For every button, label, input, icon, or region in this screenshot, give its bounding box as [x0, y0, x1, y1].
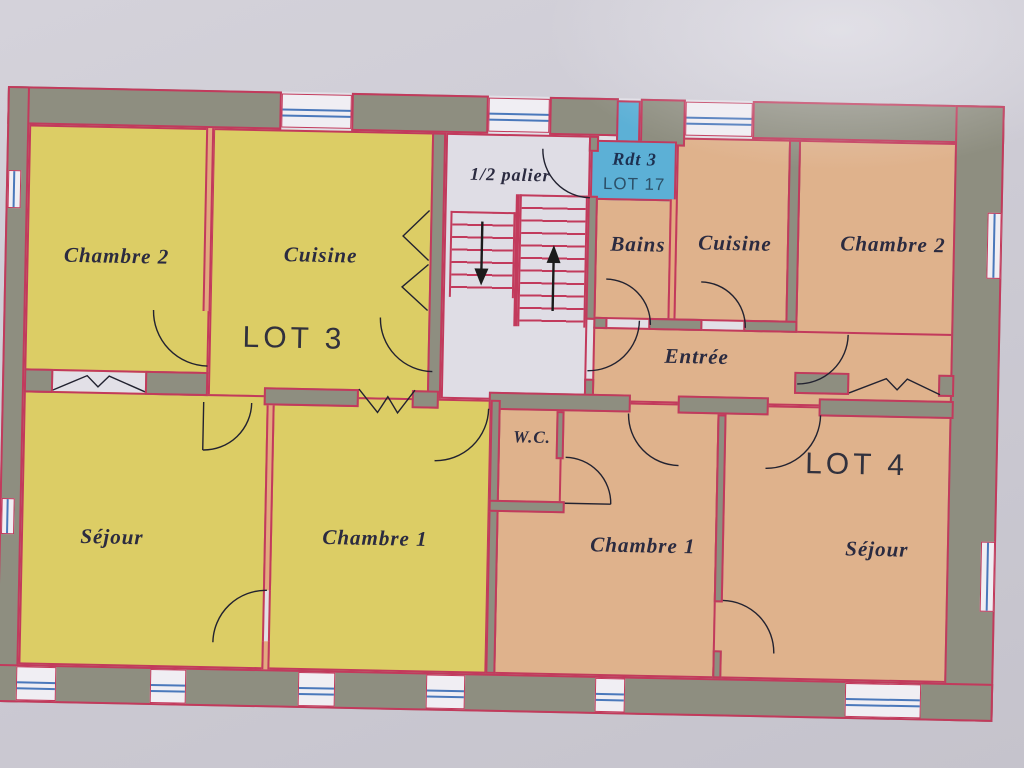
room-label-wc: W.C. [513, 427, 551, 448]
lot3-label: LOT 3 [242, 321, 345, 357]
door-arc-hall-lot3 [379, 318, 433, 372]
door-arc-wc [565, 457, 612, 504]
room-label-cuisine-lot4: Cuisine [698, 230, 772, 256]
door-arc-chambre1-lot3 [435, 408, 489, 462]
annex-lot-label: LOT 17 [603, 174, 666, 195]
closet-chevron-left-wall [53, 375, 145, 392]
room-label-chambre2-lot4: Chambre 2 [840, 231, 946, 258]
door-arc-entree-lot4 [587, 320, 639, 372]
room-label-bains: Bains [610, 232, 666, 258]
closet-chevron-chambre2-lot4 [849, 378, 940, 395]
half-landing-label: 1/2 palier [470, 164, 551, 187]
room-label-cuisine-lot3: Cuisine [284, 242, 358, 268]
door-arc-sejour-chambre1-lot3 [213, 589, 267, 643]
door-arc-chambre2-lot3 [152, 310, 208, 366]
room-label-entree: Entrée [664, 344, 729, 370]
room-label-chambre2-lot3: Chambre 2 [64, 243, 170, 270]
door-arc-bains [605, 279, 651, 325]
stairs-down-arrow [474, 221, 489, 285]
room-label-sejour-lot3: Séjour [80, 524, 144, 550]
room-label-sejour-lot4: Séjour [845, 536, 909, 562]
lot4-label: LOT 4 [805, 447, 908, 483]
folding-door-cuisine-lot3 [402, 210, 430, 311]
door-arc-sejour-chambre1-lot4 [722, 600, 775, 653]
floor-plan: Chambre 2CuisineLOT 31/2 palierRdt 3LOT … [0, 86, 1005, 722]
stairs-up-arrow [546, 245, 561, 311]
door-arc-chambre2-lot4 [797, 334, 848, 385]
annex-title-label: Rdt 3 [612, 149, 657, 171]
door-arc-chambre1-lot4 [628, 414, 680, 466]
room-label-chambre1-lot4: Chambre 1 [590, 532, 696, 559]
closet-chevron-chambre1-lot3 [359, 389, 415, 413]
door-arc-cuisine-lot4 [700, 282, 746, 328]
door-arc-sejour-lot3 [203, 402, 252, 451]
room-label-chambre1-lot3: Chambre 1 [322, 525, 428, 552]
